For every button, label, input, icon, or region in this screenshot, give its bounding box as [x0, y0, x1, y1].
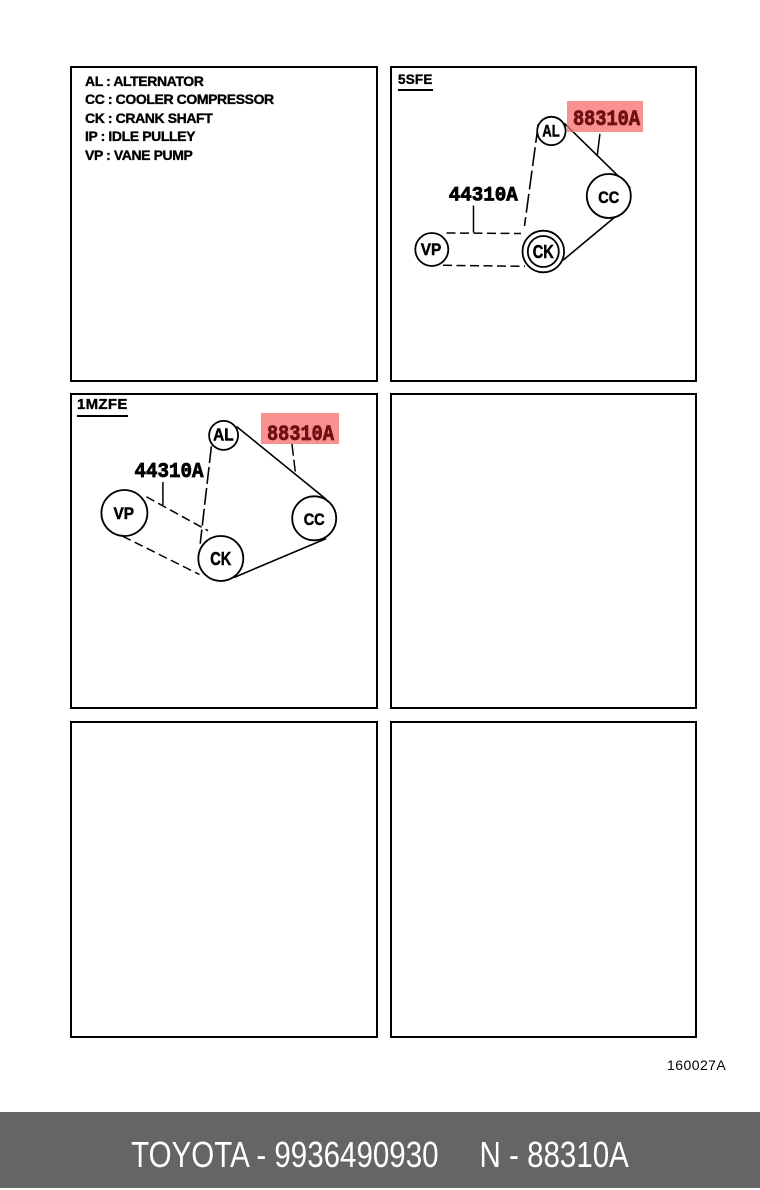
svg-text:AL: AL — [213, 425, 234, 445]
svg-text:VP: VP — [421, 240, 442, 259]
svg-text:AL: AL — [542, 122, 560, 141]
svg-text:44310A: 44310A — [449, 185, 519, 208]
svg-text:CC: CC — [598, 188, 619, 207]
svg-text:88310A: 88310A — [573, 107, 641, 132]
svg-text:CC: CC — [304, 510, 325, 529]
svg-text:CK: CK — [533, 242, 554, 262]
svg-text:88310A: 88310A — [267, 422, 335, 447]
svg-text:44310A: 44310A — [135, 460, 204, 484]
svg-text:CK: CK — [210, 549, 231, 569]
svg-text:VP: VP — [114, 504, 135, 523]
